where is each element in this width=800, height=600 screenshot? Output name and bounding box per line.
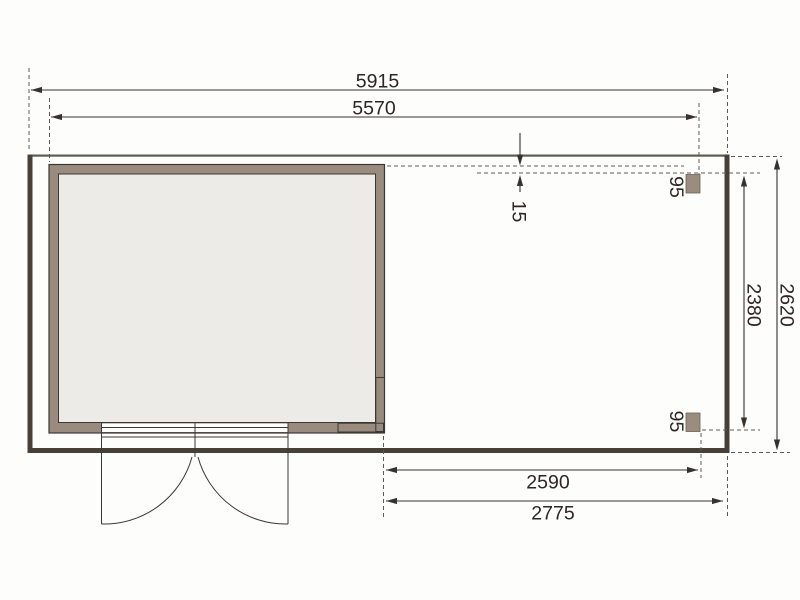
arrowhead (712, 498, 723, 504)
floor-plan-svg: 5915 5570 15 2620 2380 2590 (0, 0, 800, 600)
arrowhead (713, 87, 724, 93)
door-swing-arc-left (102, 457, 193, 524)
post-top (686, 175, 700, 194)
dimension-inner-depth: 2380 (741, 176, 765, 429)
floor-plan-canvas: 5915 5570 15 2620 2380 2590 (0, 0, 800, 600)
double-door (102, 423, 289, 524)
dim-label-inner-depth: 2380 (743, 283, 765, 327)
dimension-overall-width: 5915 (31, 71, 724, 94)
arrowhead (741, 176, 747, 187)
arrowhead (741, 418, 747, 429)
arrowhead (687, 467, 698, 473)
arrowhead (774, 440, 780, 451)
arrowhead (386, 498, 397, 504)
room-floor (59, 174, 376, 423)
dim-label-post-top: 95 (665, 176, 687, 198)
dimension-canopy-inner-width: 2590 (386, 467, 698, 494)
dim-label-post-bottom: 95 (665, 411, 687, 433)
arrowhead (386, 467, 397, 473)
dim-label-canopy-outer-width: 2775 (531, 503, 575, 525)
frame-left-edge (28, 155, 33, 454)
arrowhead (31, 87, 42, 93)
arrowhead (686, 114, 697, 120)
frame-top-edge (28, 155, 730, 157)
dim-label-wall-offset: 15 (508, 201, 530, 223)
dimension-inner-width: 5570 (51, 98, 697, 121)
frame-right-edge (725, 155, 730, 454)
arrowhead (517, 155, 523, 166)
dim-label-inner-width: 5570 (352, 98, 396, 120)
dimension-wall-offset: 15 (508, 133, 530, 222)
dimension-canopy-outer-width: 2775 (386, 498, 723, 525)
arrowhead (51, 114, 62, 120)
dim-label-overall-width: 5915 (356, 71, 400, 93)
dimension-overall-depth: 2620 (774, 159, 798, 451)
frame-bottom-edge (28, 448, 730, 453)
arrowhead (774, 159, 780, 170)
dim-label-overall-depth: 2620 (776, 283, 798, 327)
arrowhead (517, 175, 523, 186)
dim-label-canopy-inner-width: 2590 (526, 472, 570, 494)
door-swing-arc-right (198, 457, 288, 524)
cabin-room (49, 165, 385, 434)
post-bottom (686, 413, 700, 432)
